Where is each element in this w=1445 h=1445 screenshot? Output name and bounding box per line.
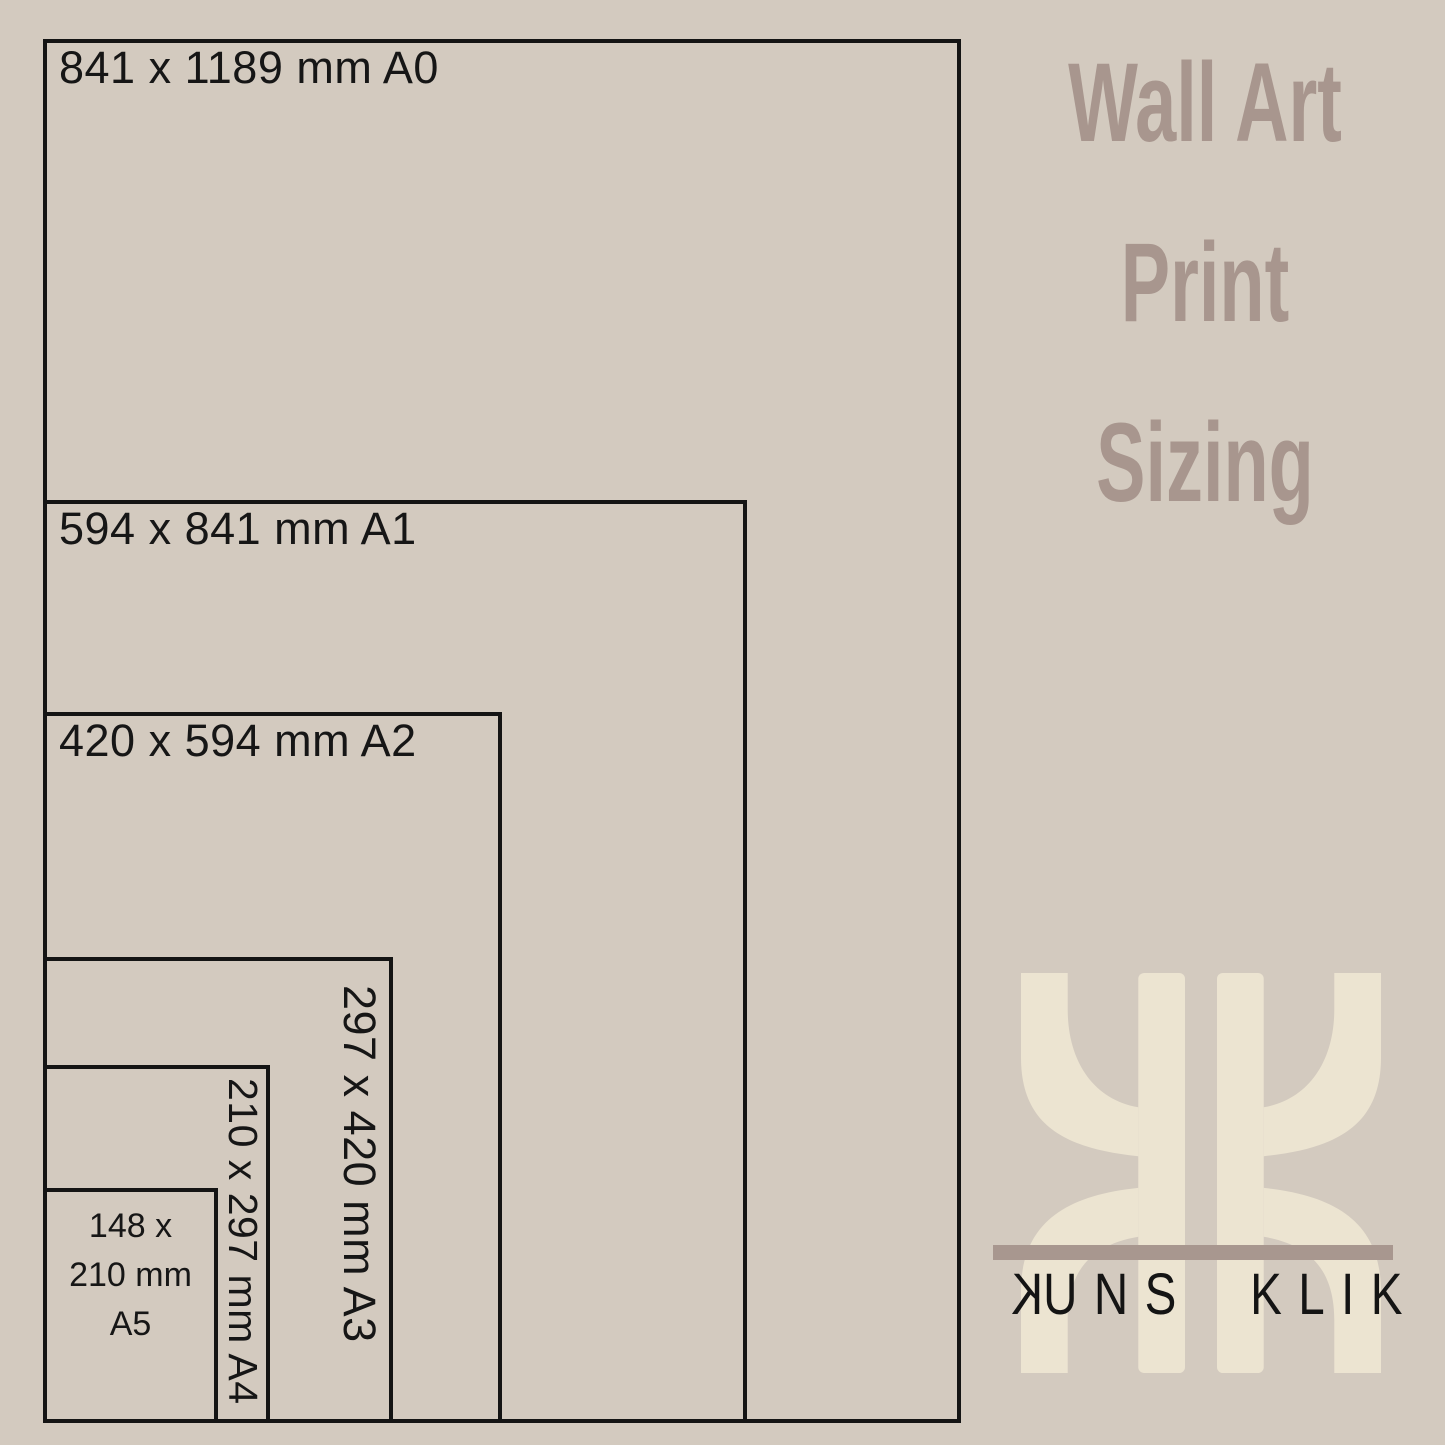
page-title-line2: Print (1047, 193, 1364, 373)
size-label-a4: 210 x 297 mm A4 (222, 1078, 263, 1405)
brand-wordmark-kuns-rest: UNS (1043, 1262, 1193, 1327)
mirrored-k-glyph: K (995, 1262, 1043, 1329)
page-title: Wall Art Print Sizing (1047, 13, 1364, 553)
size-label-a0: 841 x 1189 mm A0 (59, 45, 439, 90)
size-label-a5: 148 x 210 mm A5 (43, 1202, 218, 1349)
size-label-a5-line1: 148 x (43, 1202, 218, 1251)
brand-wordmark-klik: KLIK (1250, 1262, 1419, 1329)
logo-divider-bar (993, 1245, 1393, 1260)
size-label-a1: 594 x 841 mm A1 (59, 506, 417, 551)
print-sizing-infographic: 841 x 1189 mm A0 594 x 841 mm A1 420 x 5… (0, 0, 1445, 1445)
size-label-a5-line2: 210 mm (43, 1251, 218, 1300)
size-label-a2: 420 x 594 mm A2 (59, 718, 417, 763)
size-label-a5-line3: A5 (43, 1300, 218, 1349)
brand-wordmark: KUNS KLIK (995, 1262, 1405, 1329)
page-title-line3: Sizing (1047, 373, 1364, 553)
brand-wordmark-kuns: KUNS (995, 1262, 1193, 1329)
size-label-a3: 297 x 420 mm A3 (337, 985, 382, 1343)
page-title-line1: Wall Art (1047, 13, 1364, 193)
